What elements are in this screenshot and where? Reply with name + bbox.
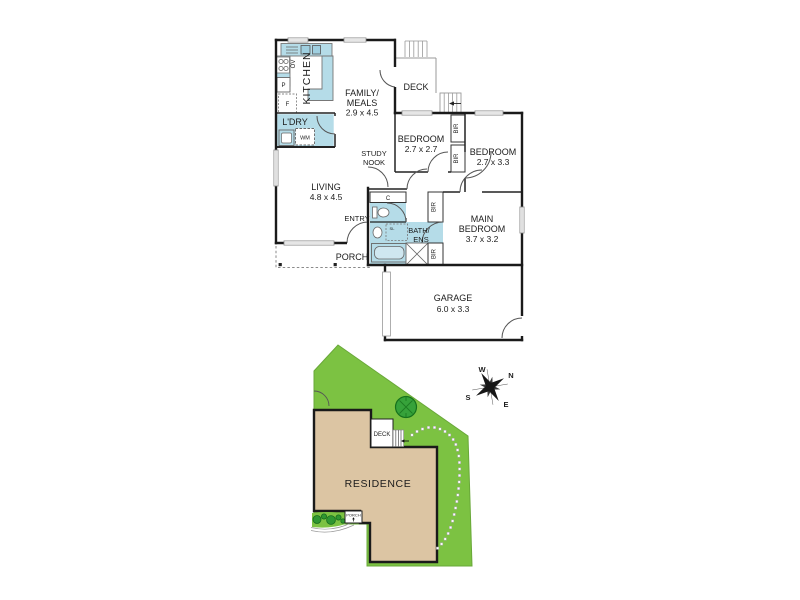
tree <box>396 397 417 418</box>
floorplan-page: KITCHEN OV P F FAMILY/ MEALS 2.9 x 4.5 D… <box>0 0 800 600</box>
shrub-icon <box>321 514 326 519</box>
room-label-laundry: L'DRY <box>282 117 308 127</box>
fridge-label: F <box>286 102 290 108</box>
deck-door-arc <box>380 70 395 87</box>
washing-machine-label: WM <box>300 136 310 142</box>
room-label-main: MAIN <box>471 214 494 224</box>
oven-label: OV <box>291 60 297 69</box>
ensuite-nook-floor <box>428 222 443 243</box>
skylight-label: SL <box>390 226 396 231</box>
robe-label: BIR <box>432 248 438 259</box>
porch-post <box>334 263 337 266</box>
main-bedroom-dims: 3.7 x 3.2 <box>466 234 499 244</box>
basin-icon <box>373 227 382 238</box>
laundry-tub-bowl <box>282 133 292 143</box>
floor-plan: KITCHEN OV P F FAMILY/ MEALS 2.9 x 4.5 D… <box>274 38 524 341</box>
garage-dims: 6.0 x 3.3 <box>437 304 470 314</box>
room-label-living: LIVING <box>311 182 341 192</box>
site-porch-label: PORCH <box>346 513 361 518</box>
deck-and-stairs <box>395 41 461 113</box>
room-label-kitchen: KITCHEN <box>301 51 313 104</box>
entry-door-arc <box>347 222 368 243</box>
toilet-cistern-icon <box>373 207 378 218</box>
robe-label: BIR <box>454 153 460 164</box>
room-label-study: STUDY <box>361 149 386 158</box>
room-label-bedroom1: BEDROOM <box>398 134 445 144</box>
robe-label: BIR <box>432 201 438 212</box>
main-bedroom-door-arc <box>460 170 482 192</box>
deck-top-steps <box>405 41 427 57</box>
site-plan: N W S E RESIDENCE DECK PORCH <box>311 345 522 566</box>
site-deck-label: DECK <box>374 432 391 438</box>
living-dims: 4.8 x 4.5 <box>310 192 343 202</box>
bedroom1-door-arc <box>428 152 448 172</box>
bedroom2-dims: 2.7 x 3.3 <box>477 157 510 167</box>
toilet-bowl-icon <box>378 208 389 217</box>
garage-panel-door <box>383 272 391 336</box>
room-label-garage: GARAGE <box>434 293 473 303</box>
robe-label: BIR <box>454 123 460 134</box>
room-label-bath: BATH/ <box>408 226 430 235</box>
cooktop-icon <box>277 57 290 73</box>
plan-canvas: KITCHEN OV P F FAMILY/ MEALS 2.9 x 4.5 D… <box>0 0 800 600</box>
cupboard-label: C <box>386 196 391 202</box>
residence-label: RESIDENCE <box>345 478 412 490</box>
room-label-porch: PORCH <box>336 252 369 262</box>
compass: N W S E <box>458 355 523 420</box>
bathtub-bowl-icon <box>375 247 405 260</box>
room-label-main-bedroom: BEDROOM <box>459 224 506 234</box>
room-label-ens: ENS <box>413 235 428 244</box>
compass-east-label: E <box>503 400 508 409</box>
compass-south-label: S <box>465 393 470 402</box>
bedroom1-dims: 2.7 x 2.7 <box>405 144 438 154</box>
sink-bowl-icon <box>313 46 321 55</box>
room-label-entry: ENTRY <box>344 214 369 223</box>
room-label-bedroom2: BEDROOM <box>470 147 517 157</box>
pantry-label: P <box>281 83 285 89</box>
room-label-nook: NOOK <box>363 158 385 167</box>
shrub-icon <box>313 516 321 524</box>
compass-west-label: W <box>478 365 486 374</box>
hallway-entry-arc <box>368 167 388 187</box>
garage-rear-door-arc <box>502 318 522 338</box>
room-label-deck: DECK <box>403 82 428 92</box>
shrub-icon <box>327 516 336 525</box>
room-label-meals: MEALS <box>347 98 378 108</box>
porch-post <box>279 263 282 266</box>
room-label-family: FAMILY/ <box>345 88 379 98</box>
compass-north-label: N <box>508 371 513 380</box>
family-dims: 2.9 x 4.5 <box>346 108 379 118</box>
shrub-icon <box>336 515 341 520</box>
